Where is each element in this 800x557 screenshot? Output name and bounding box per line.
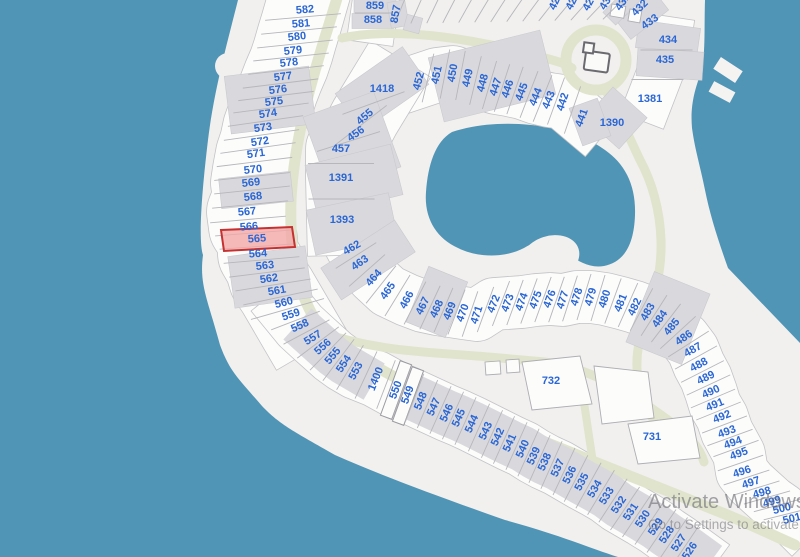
- lot-label-581[interactable]: 581: [291, 17, 310, 31]
- lot-label-1381[interactable]: 1381: [638, 93, 662, 105]
- lot-label-578[interactable]: 578: [279, 56, 299, 70]
- lot-label-577[interactable]: 577: [273, 70, 293, 84]
- parcel-731[interactable]: [628, 416, 700, 464]
- lot-label-570[interactable]: 570: [243, 163, 263, 177]
- lot-label-457[interactable]: 457: [332, 143, 350, 155]
- lot-label-732[interactable]: 732: [542, 375, 560, 387]
- lot-label-858[interactable]: 858: [364, 14, 382, 26]
- parcel-block[interactable]: [594, 366, 654, 424]
- small-parcel: [485, 361, 501, 375]
- parcel-map[interactable]: 5825815805795785775765755745735725715705…: [0, 0, 800, 557]
- lot-label-859[interactable]: 859: [366, 0, 384, 12]
- small-parcel: [506, 359, 520, 373]
- parcel-map-viewport[interactable]: 5825815805795785775765755745735725715705…: [0, 0, 800, 557]
- lot-label-564[interactable]: 564: [248, 247, 268, 260]
- lot-label-580[interactable]: 580: [287, 30, 307, 44]
- lot-label-567[interactable]: 567: [237, 205, 256, 219]
- lot-label-1418[interactable]: 1418: [370, 83, 394, 95]
- lot-label-568[interactable]: 568: [243, 190, 263, 204]
- lot-label-582[interactable]: 582: [295, 3, 314, 17]
- lot-label-1390[interactable]: 1390: [600, 117, 624, 129]
- lot-label-565[interactable]: 565: [247, 232, 266, 245]
- lot-label-563[interactable]: 563: [255, 259, 275, 273]
- activate-windows-watermark: Activate Windows: [648, 491, 800, 513]
- lot-label-571[interactable]: 571: [246, 147, 266, 161]
- lot-label-435[interactable]: 435: [656, 54, 674, 66]
- lot-label-1391[interactable]: 1391: [329, 172, 353, 184]
- lot-label-562[interactable]: 562: [259, 272, 279, 286]
- lot-label-569[interactable]: 569: [241, 176, 261, 190]
- lot-label-434[interactable]: 434: [659, 34, 678, 46]
- lot-label-573[interactable]: 573: [253, 121, 273, 135]
- lot-label-731[interactable]: 731: [643, 431, 661, 443]
- lot-label-566[interactable]: 566: [239, 220, 258, 234]
- activate-windows-watermark-subtext: Go to Settings to activate: [648, 517, 799, 532]
- lot-label-1393[interactable]: 1393: [330, 214, 354, 226]
